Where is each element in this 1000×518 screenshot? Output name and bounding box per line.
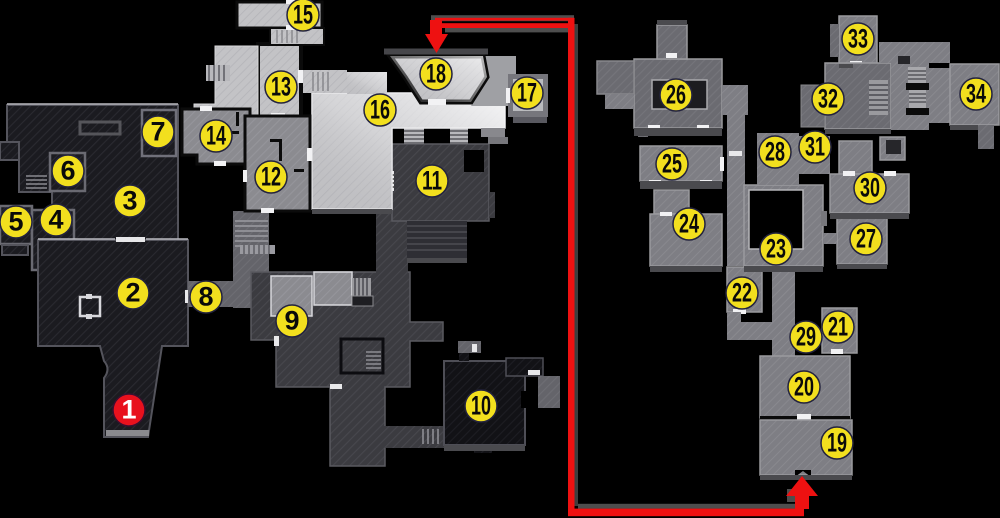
svg-text:33: 33 [848, 24, 868, 54]
svg-text:25: 25 [662, 149, 682, 179]
svg-text:7: 7 [150, 117, 165, 147]
svg-text:13: 13 [271, 72, 291, 102]
svg-text:12: 12 [261, 162, 281, 192]
svg-text:26: 26 [666, 80, 686, 110]
svg-text:18: 18 [426, 59, 446, 89]
svg-text:31: 31 [805, 132, 825, 162]
svg-text:2: 2 [125, 278, 140, 308]
svg-text:9: 9 [284, 306, 299, 336]
svg-text:4: 4 [48, 205, 63, 235]
svg-text:15: 15 [293, 0, 313, 30]
svg-text:6: 6 [60, 156, 75, 186]
svg-text:11: 11 [422, 166, 442, 196]
svg-text:8: 8 [198, 282, 213, 312]
svg-text:27: 27 [856, 224, 876, 254]
svg-text:17: 17 [517, 78, 537, 108]
svg-text:22: 22 [732, 278, 752, 308]
svg-text:34: 34 [966, 79, 986, 109]
svg-text:19: 19 [827, 428, 847, 458]
svg-text:14: 14 [206, 121, 226, 151]
svg-text:30: 30 [860, 173, 880, 203]
svg-text:5: 5 [8, 207, 23, 237]
svg-text:10: 10 [471, 391, 491, 421]
svg-text:21: 21 [828, 312, 848, 342]
svg-text:23: 23 [766, 234, 786, 264]
svg-text:24: 24 [679, 209, 699, 239]
svg-text:20: 20 [794, 372, 814, 402]
svg-text:28: 28 [765, 137, 785, 167]
svg-text:16: 16 [370, 95, 390, 125]
svg-text:1: 1 [121, 395, 136, 425]
svg-text:29: 29 [796, 322, 816, 352]
svg-text:32: 32 [818, 84, 838, 114]
svg-text:3: 3 [122, 186, 137, 216]
